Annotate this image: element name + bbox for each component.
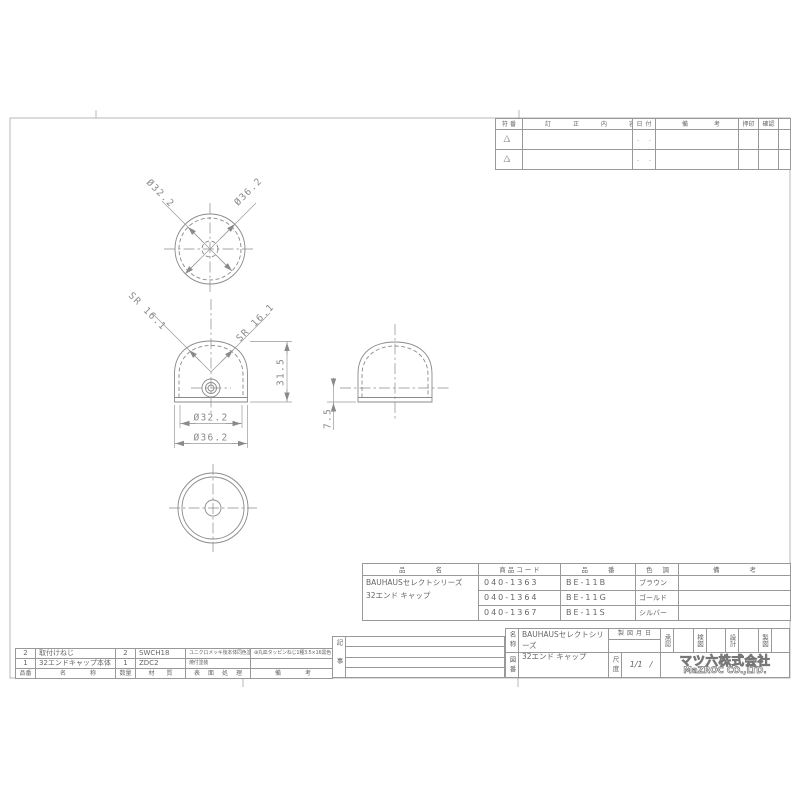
title-date-label: 製図月日 <box>609 629 660 640</box>
title-sign-approval-box <box>674 629 694 652</box>
dim-height: 31.5 <box>276 358 287 386</box>
product-header-code: 商品コード <box>479 564 561 576</box>
dim-sphere-radius-left: SR 16.1 <box>126 290 169 333</box>
title-date-value <box>609 640 660 652</box>
company-name-en: MaZROC CO.,LTD. <box>683 667 766 676</box>
product-header-remark: 備考 <box>679 564 791 576</box>
product-header-part-no: 品番 <box>561 564 636 576</box>
title-sign-design-label: 設計 <box>726 629 739 652</box>
notes-row <box>346 647 504 657</box>
dim-top-inner-diameter: Ø32.2 <box>144 177 177 210</box>
title-sign-check-label: 検図 <box>694 629 707 652</box>
notes-row <box>346 668 504 677</box>
title-date-cell: 製図月日 <box>609 629 661 652</box>
title-name-label: 名称 <box>506 629 519 652</box>
parts-header-finish: 表面処理 <box>186 669 251 679</box>
parts-header-qty: 数量 <box>116 669 136 679</box>
parts-header-remark: 備考 <box>251 669 333 679</box>
revision-header-content: 訂正内容 <box>523 119 633 130</box>
notes-label: 記事 <box>333 637 346 677</box>
dim-sphere-radius-right: SR 16.1 <box>234 302 277 345</box>
revision-mark-icon: △2 <box>504 155 515 165</box>
title-sign-approval-label: 承認 <box>661 629 674 652</box>
revision-row: △1 . . <box>496 130 791 150</box>
title-block: 名称 BAUHAUSセレクトシリーズ 32エンド キャップ 製図月日 承認 検図… <box>505 628 790 678</box>
top-view: Ø32.2 Ø36.2 <box>144 176 265 295</box>
notes-row <box>346 658 504 668</box>
parts-header-no: 品番 <box>16 669 36 679</box>
revision-table: 符番 訂正内容 日付 備考 押印 確認 △1 . . △2 . . <box>495 118 791 170</box>
notes-area: 記事 <box>332 636 505 678</box>
dim-top-outer-diameter: Ø36.2 <box>232 176 265 209</box>
front-view: SR 16.1 SR 16.1 31.5 Ø32.2 <box>126 290 292 448</box>
dim-front-inner-diameter: Ø32.2 <box>193 413 228 424</box>
title-drawing-no-label: 図番 <box>506 653 519 677</box>
revision-header-mark: 符番 <box>496 119 523 130</box>
title-sign-check-box <box>707 629 727 652</box>
company-logo: マツ六株式会社 MaZROC CO.,LTD. <box>661 653 789 677</box>
product-header-color: 色調 <box>636 564 679 576</box>
revision-header-confirm: 確認 <box>759 119 779 130</box>
title-sign-design-box <box>739 629 759 652</box>
title-scale-label: 尺度 <box>609 653 622 677</box>
revision-mark-icon: △1 <box>504 135 515 145</box>
parts-row: 1 32エンドキャップ本体 1 ZDC2 焼付塗装 <box>16 659 333 669</box>
bottom-view <box>169 464 257 552</box>
notes-row <box>346 637 504 647</box>
product-name-cell: BAUHAUSセレクトシリーズ 32エンド キャップ <box>363 576 479 621</box>
title-scale-value: 1/1 / <box>622 653 661 677</box>
revision-row: △2 . . <box>496 150 791 170</box>
title-sign-draft-label: 製図 <box>759 629 772 652</box>
product-header-name: 品名 <box>363 564 479 576</box>
parts-header-material: 材質 <box>136 669 186 679</box>
title-name-value: BAUHAUSセレクトシリーズ 32エンド キャップ <box>519 629 609 652</box>
title-sign-draft-box <box>772 629 790 652</box>
product-name-line2: 32エンド キャップ <box>363 589 478 602</box>
parts-row: 2 取付けねじ 2 SWCH18 ユニクロメッキ後本体同色塗装 ⊕丸皿タッピンね… <box>16 649 333 659</box>
parts-header-name: 名称 <box>36 669 116 679</box>
drawing-sheet: Ø32.2 Ø36.2 SR 16.1 SR 16.1 <box>0 0 800 800</box>
product-table: 品名 商品コード 品番 色調 備考 BAUHAUSセレクトシリーズ 32エンド … <box>362 563 791 621</box>
product-row: BAUHAUSセレクトシリーズ 32エンド キャップ 040-1363 BE-1… <box>363 576 791 591</box>
dim-front-outer-diameter: Ø36.2 <box>193 433 228 444</box>
side-view: 7.5 <box>323 324 451 430</box>
revision-header-stamp: 押印 <box>739 119 759 130</box>
product-name-line1: BAUHAUSセレクトシリーズ <box>363 576 478 589</box>
dim-skirt-height: 7.5 <box>323 408 334 429</box>
revision-header-remark: 備考 <box>656 119 739 130</box>
revision-header-date: 日付 <box>633 119 656 130</box>
parts-table: 2 取付けねじ 2 SWCH18 ユニクロメッキ後本体同色塗装 ⊕丸皿タッピンね… <box>15 648 333 679</box>
title-drawing-no-value <box>519 653 609 677</box>
